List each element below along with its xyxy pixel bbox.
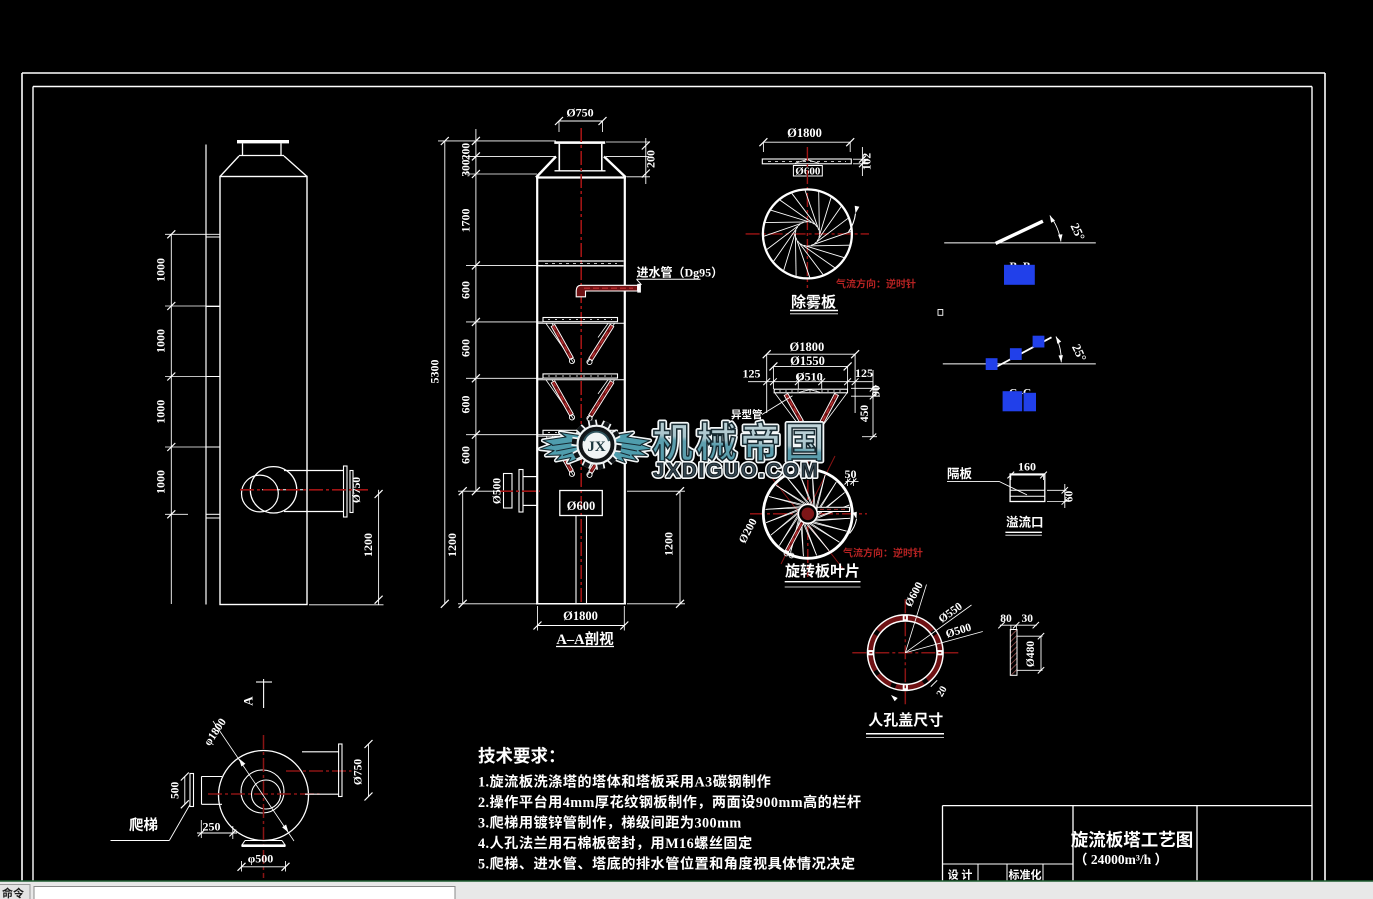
svg-text:1000: 1000 <box>154 470 168 494</box>
svg-text:3.爬梯用镀锌管制作，梯级间距为300mm: 3.爬梯用镀锌管制作，梯级间距为300mm <box>478 813 742 833</box>
svg-text:600: 600 <box>458 339 472 357</box>
svg-text:Ø750: Ø750 <box>353 759 365 785</box>
svg-text:1200: 1200 <box>662 532 676 556</box>
svg-text:30: 30 <box>1021 613 1033 625</box>
svg-text:气流方向：逆时针: 气流方向：逆时针 <box>836 276 916 291</box>
svg-text:5300: 5300 <box>428 360 442 384</box>
svg-text:Ø600: Ø600 <box>567 499 595 513</box>
svg-text:旋转板叶片: 旋转板叶片 <box>785 560 860 581</box>
svg-text:600: 600 <box>458 446 472 464</box>
svg-text:450: 450 <box>859 405 871 423</box>
svg-text:Ø750: Ø750 <box>566 106 593 120</box>
svg-text:1000: 1000 <box>154 329 168 353</box>
svg-text:4.人孔法兰用石棉板密封，用M16螺丝固定: 4.人孔法兰用石棉板密封，用M16螺丝固定 <box>478 833 753 853</box>
svg-text:300: 300 <box>460 159 472 177</box>
svg-text:（ 24000m³/h ）: （ 24000m³/h ） <box>1074 848 1168 868</box>
svg-text:500: 500 <box>170 782 182 800</box>
svg-text:技术要求：: 技术要求： <box>478 743 566 768</box>
svg-text:90: 90 <box>871 385 883 397</box>
svg-text:60: 60 <box>1064 491 1076 503</box>
svg-text:102: 102 <box>862 153 874 171</box>
svg-text:A–A剖视: A–A剖视 <box>556 628 614 649</box>
svg-text:A: A <box>240 696 255 706</box>
svg-text:气流方向：逆时针: 气流方向：逆时针 <box>843 545 923 560</box>
svg-text:2.操作平台用4mm厚花纹钢板制作，两面设900mm高的栏杆: 2.操作平台用4mm厚花纹钢板制作，两面设900mm高的栏杆 <box>478 792 862 812</box>
svg-text:200: 200 <box>460 143 472 161</box>
svg-text:125: 125 <box>855 366 873 380</box>
svg-text:80: 80 <box>1000 613 1012 625</box>
svg-text:JXDIGUO.COM: JXDIGUO.COM <box>653 459 820 482</box>
svg-text:进水管（Dg95）: 进水管（Dg95） <box>637 264 724 281</box>
svg-text:设 计: 设 计 <box>948 867 973 883</box>
svg-text:1000: 1000 <box>154 258 168 282</box>
svg-text:Ø1800: Ø1800 <box>787 126 822 140</box>
svg-text:φ500: φ500 <box>248 852 274 866</box>
svg-text:人孔盖尺寸: 人孔盖尺寸 <box>868 709 943 730</box>
svg-text:JX: JX <box>587 439 606 455</box>
svg-text:250: 250 <box>203 820 221 834</box>
svg-text:除雾板: 除雾板 <box>791 291 836 312</box>
svg-text:1000: 1000 <box>154 400 168 424</box>
svg-text:Ø750: Ø750 <box>351 477 363 503</box>
svg-text:200: 200 <box>644 150 658 168</box>
svg-text:Ø1550: Ø1550 <box>790 354 825 368</box>
svg-text:Ø480: Ø480 <box>1025 641 1037 667</box>
svg-text:1200: 1200 <box>445 533 459 557</box>
svg-text:1700: 1700 <box>458 209 472 233</box>
svg-text:600: 600 <box>458 281 472 299</box>
svg-text:125: 125 <box>743 366 761 380</box>
svg-text:1200: 1200 <box>361 533 375 557</box>
svg-text:标准化: 标准化 <box>1009 867 1042 883</box>
svg-text:隔板: 隔板 <box>947 463 973 482</box>
svg-text:Ø1800: Ø1800 <box>790 340 825 354</box>
svg-text:1.旋流板洗涤塔的塔体和塔板采用A3碳钢制作: 1.旋流板洗涤塔的塔体和塔板采用A3碳钢制作 <box>478 772 771 792</box>
svg-text:溢流口: 溢流口 <box>1006 512 1044 531</box>
svg-text:160: 160 <box>1018 460 1036 474</box>
svg-text:5.爬梯、进水管、塔底的排水管位置和角度视具体情况决定: 5.爬梯、进水管、塔底的排水管位置和角度视具体情况决定 <box>478 854 855 874</box>
svg-text:命令: 命令 <box>2 885 24 899</box>
svg-text:600: 600 <box>458 396 472 414</box>
svg-text:Ø1800: Ø1800 <box>563 609 598 623</box>
svg-text:爬梯: 爬梯 <box>129 814 158 835</box>
